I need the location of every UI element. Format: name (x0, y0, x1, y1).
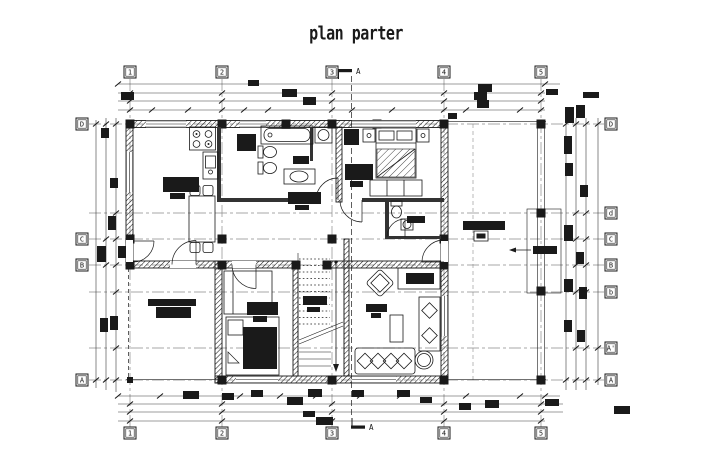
grid-bubble-rowAprime-right: A' (605, 342, 617, 354)
grid-bubble-col2-bottom: 2 (216, 427, 228, 439)
svg-text:4: 4 (442, 69, 446, 77)
grid-bubble-col1-top: 1 (124, 66, 136, 78)
grid-bubble-col1-bottom: 1 (124, 427, 136, 439)
svg-text:C: C (80, 236, 84, 244)
boiler-symbol (315, 127, 332, 143)
double-bed-symbol (376, 128, 416, 178)
toilet-symbol (258, 146, 277, 158)
bathtub-symbol (261, 126, 313, 144)
window-symbol (441, 296, 448, 336)
grid-bubble-col4-top: 4 (438, 66, 450, 78)
svg-text:A: A (356, 67, 361, 76)
grid-bubble-rowB-left: B (76, 259, 88, 271)
grid-bubble-rowb-right: b (605, 286, 617, 298)
stove-symbol (190, 127, 216, 150)
grid-bubble-rowC-left: C (76, 233, 88, 245)
svg-text:D: D (609, 121, 613, 129)
grid-bubble-rowd-right: d (605, 207, 617, 219)
window-symbol (236, 376, 278, 383)
grid-bubble-rowA-left: A (76, 374, 88, 386)
drawing-canvas: plan parter (0, 0, 712, 476)
svg-text:5: 5 (539, 430, 543, 438)
terrace-left (126, 268, 218, 383)
window-symbol (126, 152, 133, 192)
svg-text:3: 3 (330, 69, 334, 77)
shelf-unit-symbol (419, 297, 440, 351)
svg-text:4: 4 (442, 430, 446, 438)
window-symbol (352, 376, 396, 383)
svg-text:A': A' (607, 345, 615, 353)
grid-bubble-rowD-left: D (76, 118, 88, 130)
window-symbol (240, 121, 266, 128)
structural-columns (126, 120, 546, 385)
grid-bubble-col4-bottom: 4 (438, 427, 450, 439)
svg-text:B: B (609, 262, 613, 270)
window-symbol (352, 121, 416, 128)
grid-bubble-rowC-right: C (605, 233, 617, 245)
svg-text:1: 1 (128, 430, 132, 438)
bath-sink-symbol (284, 169, 315, 184)
section-marker-bottom: A (351, 418, 374, 432)
grid-bubble-col5-top: 5 (535, 66, 547, 78)
svg-text:5: 5 (539, 69, 543, 77)
svg-text:D: D (80, 121, 84, 129)
svg-text:B: B (80, 262, 84, 270)
tv-unit-symbol (398, 268, 440, 289)
nightstand-symbol (417, 129, 429, 142)
bidet-symbol (258, 162, 277, 174)
svg-text:1: 1 (128, 69, 132, 77)
boxed-label (474, 231, 488, 241)
window-symbol (146, 121, 186, 128)
wc-toilet-symbol (391, 201, 402, 218)
dresser-symbol (370, 180, 422, 196)
svg-text:3: 3 (330, 430, 334, 438)
nightstand-symbol (363, 129, 375, 142)
svg-text:2: 2 (220, 430, 224, 438)
grid-bubble-col3-top: 3 (326, 66, 338, 78)
section-marker-top: A (337, 67, 361, 79)
grid-bubble-col3-bottom: 3 (326, 427, 338, 439)
kitchen-sink-symbol (203, 152, 218, 179)
grid-bubble-rowB-right: B (605, 259, 617, 271)
armchair-symbol (366, 269, 394, 297)
svg-text:A: A (369, 423, 374, 432)
dining-table-symbol (189, 186, 215, 253)
staircase (298, 253, 344, 376)
grid-bubble-col2-top: 2 (216, 66, 228, 78)
round-table-symbol (415, 351, 433, 369)
bed-symbol (226, 317, 279, 375)
grid-bubble-rowA-right: A (605, 374, 617, 386)
svg-text:d: d (609, 210, 613, 218)
grid-bubble-rowD-right: D (605, 118, 617, 130)
svg-text:b: b (609, 289, 613, 297)
grid-bubble-col5-bottom: 5 (535, 427, 547, 439)
floor-plan-drawing: A A 1 2 3 4 5 1 2 3 4 5 D C B A D d C B (0, 0, 712, 476)
svg-text:2: 2 (220, 69, 224, 77)
svg-text:C: C (609, 236, 613, 244)
sofa-symbol (355, 348, 415, 374)
coffee-table-symbol (390, 315, 403, 342)
terrace-right (448, 121, 561, 383)
